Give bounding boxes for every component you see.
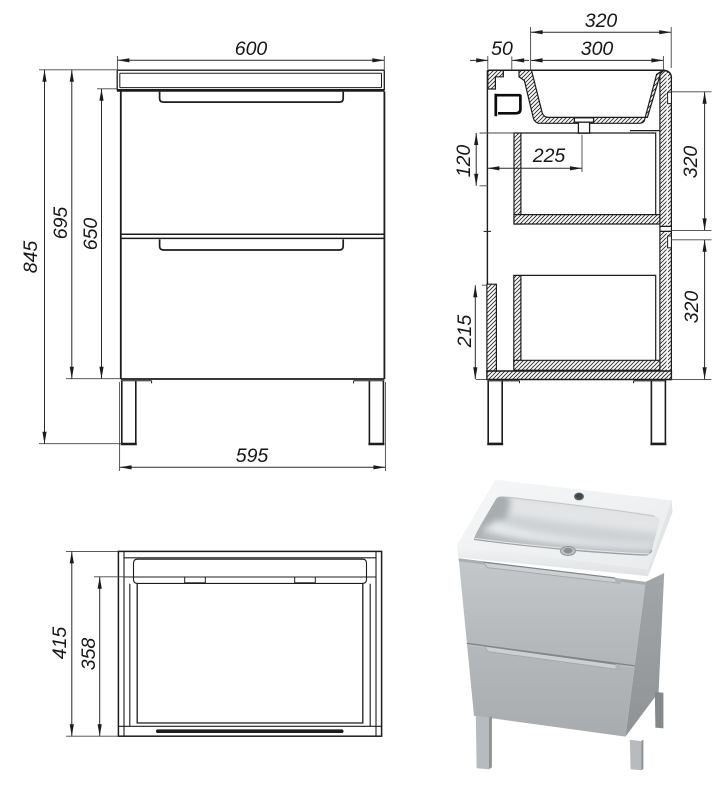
svg-text:845: 845 xyxy=(20,241,42,274)
svg-text:650: 650 xyxy=(80,218,102,251)
svg-text:225: 225 xyxy=(532,145,566,167)
svg-text:320: 320 xyxy=(681,291,703,324)
svg-text:120: 120 xyxy=(453,145,475,178)
svg-text:695: 695 xyxy=(50,207,72,240)
svg-text:600: 600 xyxy=(235,38,268,60)
svg-text:215: 215 xyxy=(454,315,476,349)
svg-text:300: 300 xyxy=(581,38,614,60)
svg-text:50: 50 xyxy=(491,38,513,60)
svg-text:595: 595 xyxy=(236,445,269,467)
svg-text:320: 320 xyxy=(680,146,702,179)
svg-text:358: 358 xyxy=(78,638,100,671)
svg-text:415: 415 xyxy=(49,627,71,660)
svg-text:320: 320 xyxy=(585,10,618,32)
